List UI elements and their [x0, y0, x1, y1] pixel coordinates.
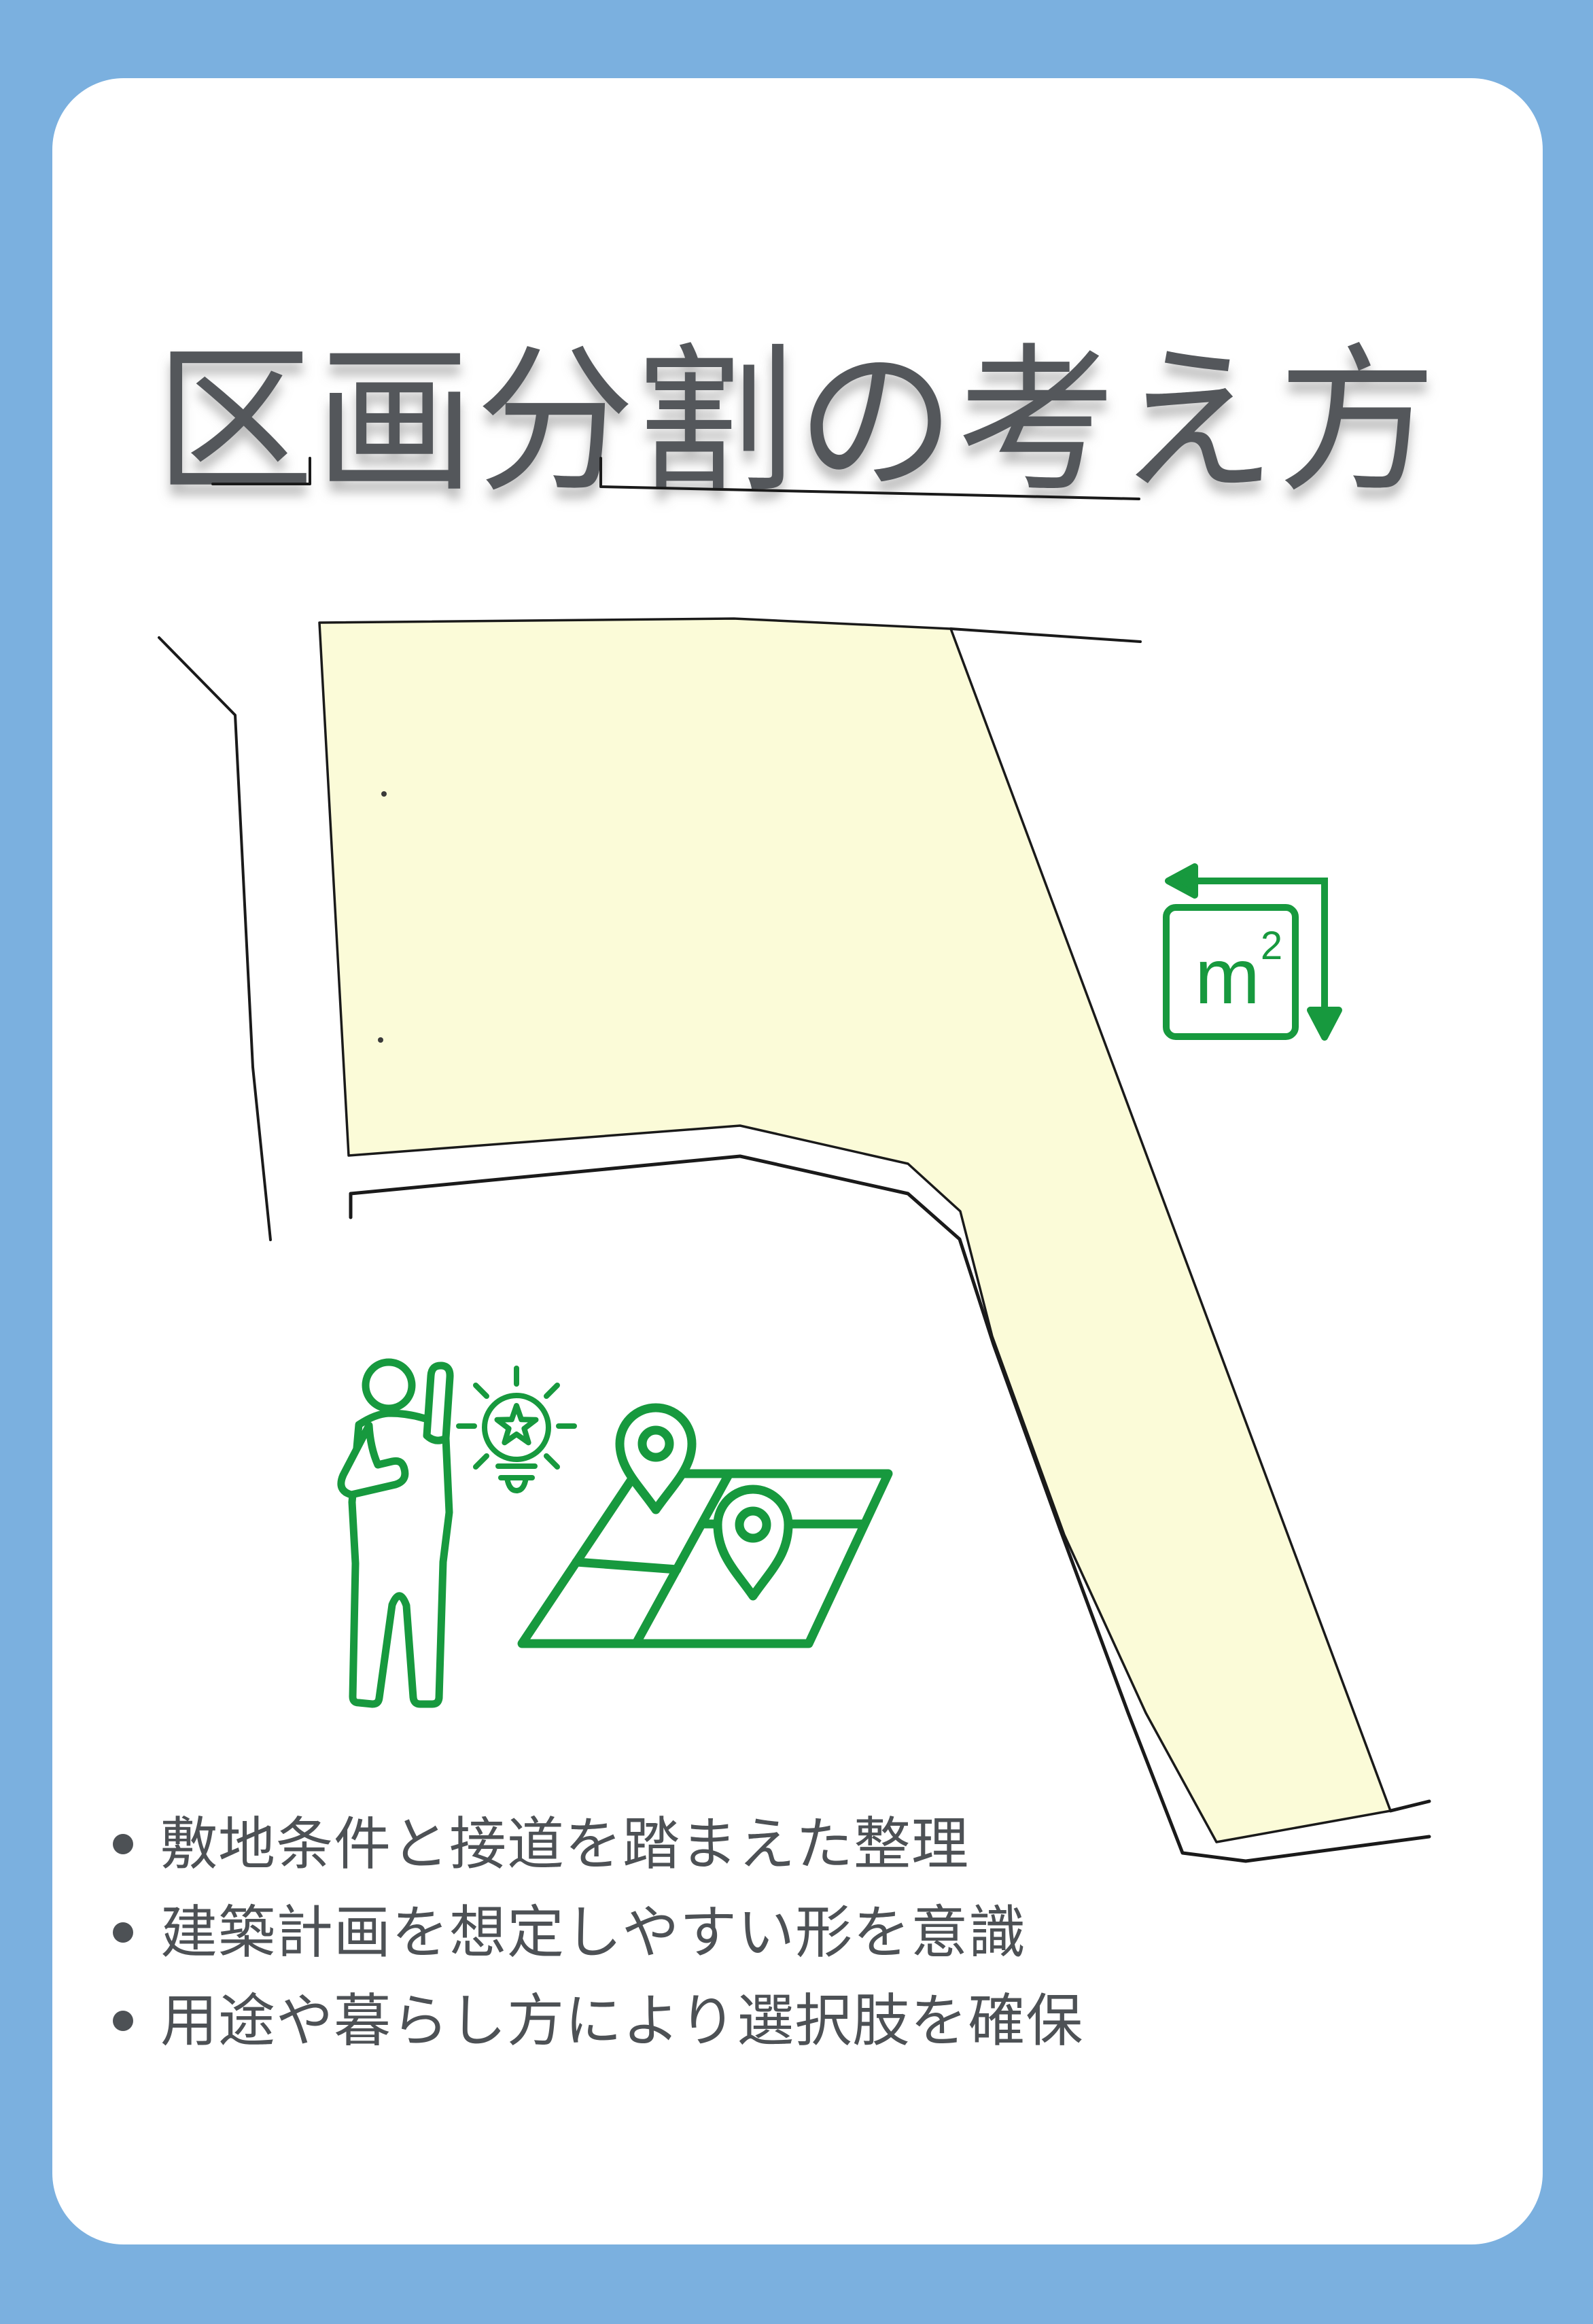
road-corner-top-right: [601, 458, 1139, 499]
bullet-dot-icon: [113, 1922, 133, 1943]
m2-label-sup: 2: [1261, 924, 1282, 968]
road-line-left: [159, 638, 270, 1240]
list-item: 用途や暮らし方により選択肢を確保: [103, 1977, 1435, 2065]
person-head: [366, 1362, 412, 1408]
person-raised-arm: [427, 1366, 450, 1440]
location-pin-hole: [642, 1430, 669, 1457]
road-line-parcel-top-extension: [951, 629, 1140, 642]
person-presenting-icon: [341, 1362, 450, 1704]
bullet-dot-icon: [113, 1834, 133, 1854]
lightbulb-star-icon: [459, 1368, 574, 1491]
location-pin-hole: [739, 1511, 767, 1538]
map-pins-icon: [522, 1408, 888, 1644]
list-item: 敷地条件と接道を踏まえた整理: [103, 1800, 1435, 1888]
survey-dot: [378, 1037, 383, 1043]
list-item: 建築計画を想定しやすい形を意識: [103, 1888, 1435, 1977]
land-parcel-shape: [319, 619, 1390, 1842]
infographic-page: 区画分割の考え方 m 2: [0, 0, 1593, 2324]
list-item-text: 用途や暮らし方により選択肢を確保: [160, 1977, 1083, 2065]
road-corner-top-left: [213, 458, 310, 484]
survey-dot: [381, 791, 387, 797]
list-item-text: 敷地条件と接道を踏まえた整理: [160, 1800, 969, 1888]
map-grid-line-left: [576, 1562, 677, 1569]
area-measure-icon: m 2: [1166, 867, 1339, 1037]
bullet-dot-icon: [113, 2011, 133, 2031]
m2-label-base: m: [1195, 933, 1260, 1020]
list-item-text: 建築計画を想定しやすい形を意識: [160, 1888, 1026, 1977]
key-points-list: 敷地条件と接道を踏まえた整理 建築計画を想定しやすい形を意識 用途や暮らし方によ…: [103, 1800, 1435, 2065]
